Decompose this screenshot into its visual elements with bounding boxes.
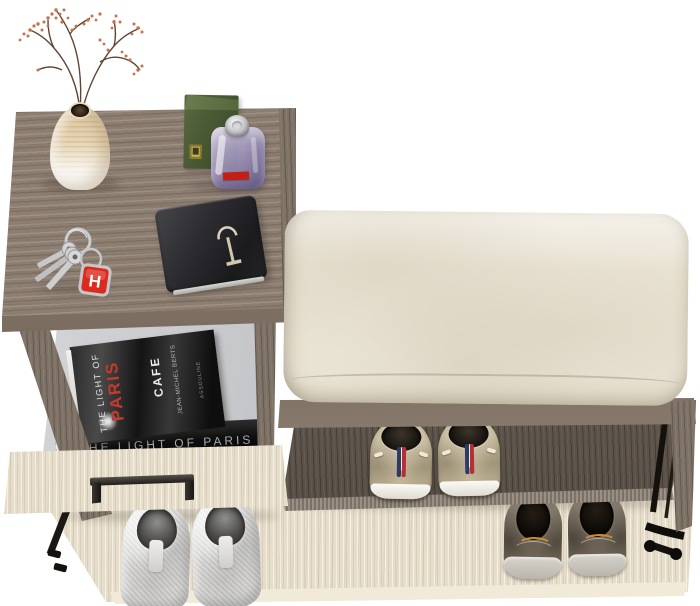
drawer-handle-post bbox=[92, 483, 101, 504]
eyelet bbox=[419, 451, 429, 458]
bottle-cap bbox=[225, 115, 249, 137]
plush-sneaker-right bbox=[190, 495, 262, 606]
perfume-box-label bbox=[190, 145, 202, 159]
keys: H bbox=[28, 216, 116, 298]
shoe-sole bbox=[568, 553, 626, 576]
heel-tab bbox=[148, 540, 163, 572]
eyelet bbox=[442, 449, 452, 456]
heel-tab bbox=[218, 536, 233, 568]
canvas-sneakers bbox=[368, 416, 504, 500]
plush-sneaker-left bbox=[120, 499, 192, 606]
plush-sneakers bbox=[120, 496, 268, 606]
eyelet bbox=[374, 451, 384, 457]
keychain-fob: H bbox=[79, 264, 111, 296]
canvas-sneaker-left bbox=[369, 418, 432, 499]
branch-stems bbox=[30, 10, 140, 112]
vase-mouth bbox=[71, 104, 89, 117]
drawer-handle-post bbox=[185, 481, 194, 501]
vase bbox=[50, 106, 110, 190]
bottle-label bbox=[223, 172, 249, 181]
wallet-clasp bbox=[212, 221, 247, 270]
shoe-sole bbox=[370, 483, 430, 499]
seat-cushion bbox=[283, 210, 689, 406]
cushion-piping bbox=[291, 372, 679, 392]
canvas-sneaker-right bbox=[437, 415, 500, 496]
product-photo: THE LIGHT OF PARIS THE LIGHT OF PARIS CA… bbox=[0, 0, 700, 606]
heel-stripe bbox=[465, 444, 475, 474]
wallet bbox=[154, 195, 268, 294]
heel-stripe bbox=[397, 447, 407, 477]
keychain-letter: H bbox=[87, 271, 102, 292]
shoe-sole bbox=[439, 480, 499, 496]
branch-berries bbox=[19, 8, 144, 75]
perfume-bottle bbox=[211, 127, 265, 189]
brown-shoe-left bbox=[503, 493, 562, 580]
dried-branches bbox=[4, 0, 164, 120]
eyelet bbox=[487, 447, 497, 453]
shoe-sole bbox=[503, 556, 561, 579]
book-publisher: ASSOULINE bbox=[193, 344, 209, 414]
book-top: THE LIGHT OF PARIS CAFE JEAN-MICHEL BERT… bbox=[70, 330, 226, 445]
